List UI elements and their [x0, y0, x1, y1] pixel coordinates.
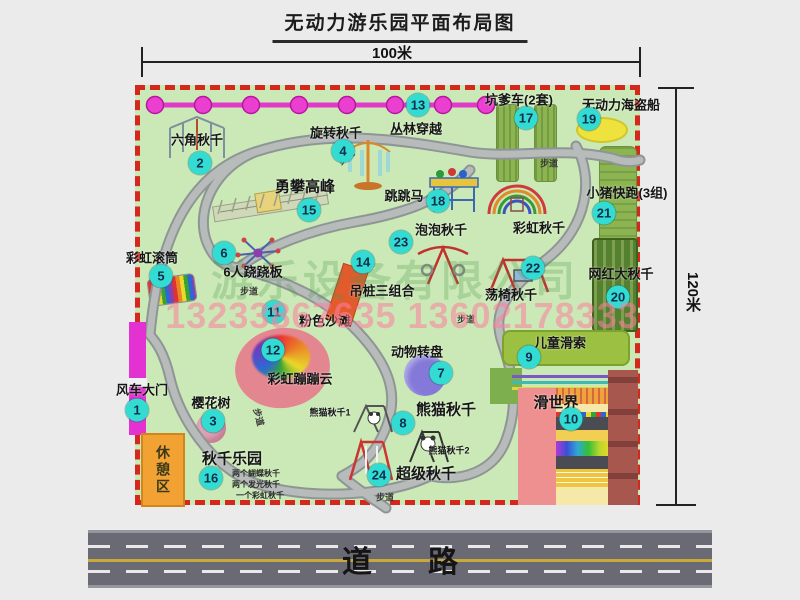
rest-area-box: 休憩区 [141, 433, 185, 507]
slide-stripe [556, 487, 610, 505]
badge-jumping-horse: 18 [427, 190, 450, 213]
label-pit-car: 坑爹车(2套) [485, 90, 553, 109]
phone-watermark: 13233867635 13602178333 [165, 295, 638, 337]
label-swing-park: 秋千乐园 [202, 448, 262, 469]
badge-super-swing: 24 [368, 464, 391, 487]
label-bounce-cloud: 彩虹蹦蹦云 [267, 369, 332, 388]
label-panda-swing-1: 熊猫秋千1 [309, 406, 350, 419]
badge-animal-turntable: 7 [430, 362, 453, 385]
slide-world-tower [608, 370, 638, 505]
label-seesaw: 6人跷跷板 [223, 262, 282, 281]
label-bubble-swing: 泡泡秋千 [415, 220, 467, 239]
badge-pirate-ship: 19 [578, 108, 601, 131]
badge-bounce-cloud: 12 [262, 339, 285, 362]
badge-pit-car: 17 [515, 107, 538, 130]
pit-car-track-2 [534, 104, 557, 182]
right-dimension-tick-top [658, 87, 694, 89]
label-animal-turntable: 动物转盘 [391, 342, 443, 361]
badge-panda-swing: 8 [392, 412, 415, 435]
trail-label: 步道 [376, 491, 394, 504]
right-dimension-line [675, 88, 677, 506]
swing-park-note-2: 两个发光秋千 [232, 479, 280, 490]
trail-label: 步道 [540, 157, 558, 170]
slide-stripe [556, 430, 610, 441]
badge-hexagon-swing: 2 [189, 152, 212, 175]
badge-bubble-swing: 23 [390, 231, 413, 254]
badge-slide-world: 10 [560, 408, 583, 431]
width-dimension-label: 100米 [372, 42, 412, 63]
badge-rotating-swing: 4 [332, 140, 355, 163]
label-hexagon-swing: 六角秋千 [171, 130, 223, 149]
zipline-cable-1 [512, 375, 618, 378]
label-rotating-swing: 旋转秋千 [310, 123, 362, 142]
badge-cherry-tree: 3 [202, 410, 225, 433]
badge-swing-park: 16 [200, 467, 223, 490]
badge-kids-zipline: 9 [518, 346, 541, 369]
label-jungle-crossing: 丛林穿越 [390, 119, 442, 138]
road: 道路 [88, 530, 712, 588]
top-dimension-tick-right [639, 47, 641, 77]
rest-area-label: 休憩区 [153, 445, 173, 496]
badge-windmill-gate: 1 [126, 399, 149, 422]
label-super-swing: 超级秋千 [396, 463, 456, 484]
height-dimension-label: 120米 [682, 272, 703, 312]
label-windmill-gate: 风车大门 [116, 380, 168, 399]
badge-rainbow-roller: 5 [150, 265, 173, 288]
badge-hanging-post-combo: 14 [352, 251, 375, 274]
right-dimension-tick-bottom [656, 504, 696, 506]
label-rainbow-swing: 彩虹秋千 [513, 218, 565, 237]
badge-climbing-peak: 15 [298, 199, 321, 222]
zipline-cable-2 [512, 381, 618, 384]
page-title: 无动力游乐园平面布局图 [272, 8, 527, 43]
park-layout-plan: 无动力游乐园平面布局图 100米 120米 休憩区 [0, 0, 800, 600]
road-label: 道路 [286, 537, 514, 581]
label-big-swing: 网红大秋千 [588, 264, 653, 283]
label-rainbow-roller: 彩虹滚筒 [126, 248, 178, 267]
label-panda-swing: 熊猫秋千 [416, 399, 476, 420]
badge-seesaw: 6 [213, 242, 236, 265]
swing-park-note-1: 两个蝴蝶秋千 [232, 468, 280, 479]
label-panda-swing-2: 熊猫秋千2 [428, 444, 469, 457]
swing-park-note-3: 一个彩虹秋千 [236, 490, 284, 501]
label-climbing-peak: 勇攀高峰 [275, 176, 335, 197]
slide-stripe [556, 441, 610, 456]
badge-chair-swing: 22 [522, 257, 545, 280]
label-pig-run: 小猪快跑(3组) [587, 183, 668, 202]
label-jumping-horse: 跳跳马 [384, 186, 423, 205]
slide-stripe [556, 456, 610, 469]
slide-stripe [556, 469, 610, 487]
top-dimension-tick-left [141, 47, 143, 77]
badge-jungle-crossing: 13 [407, 94, 430, 117]
badge-pig-run: 21 [593, 202, 616, 225]
